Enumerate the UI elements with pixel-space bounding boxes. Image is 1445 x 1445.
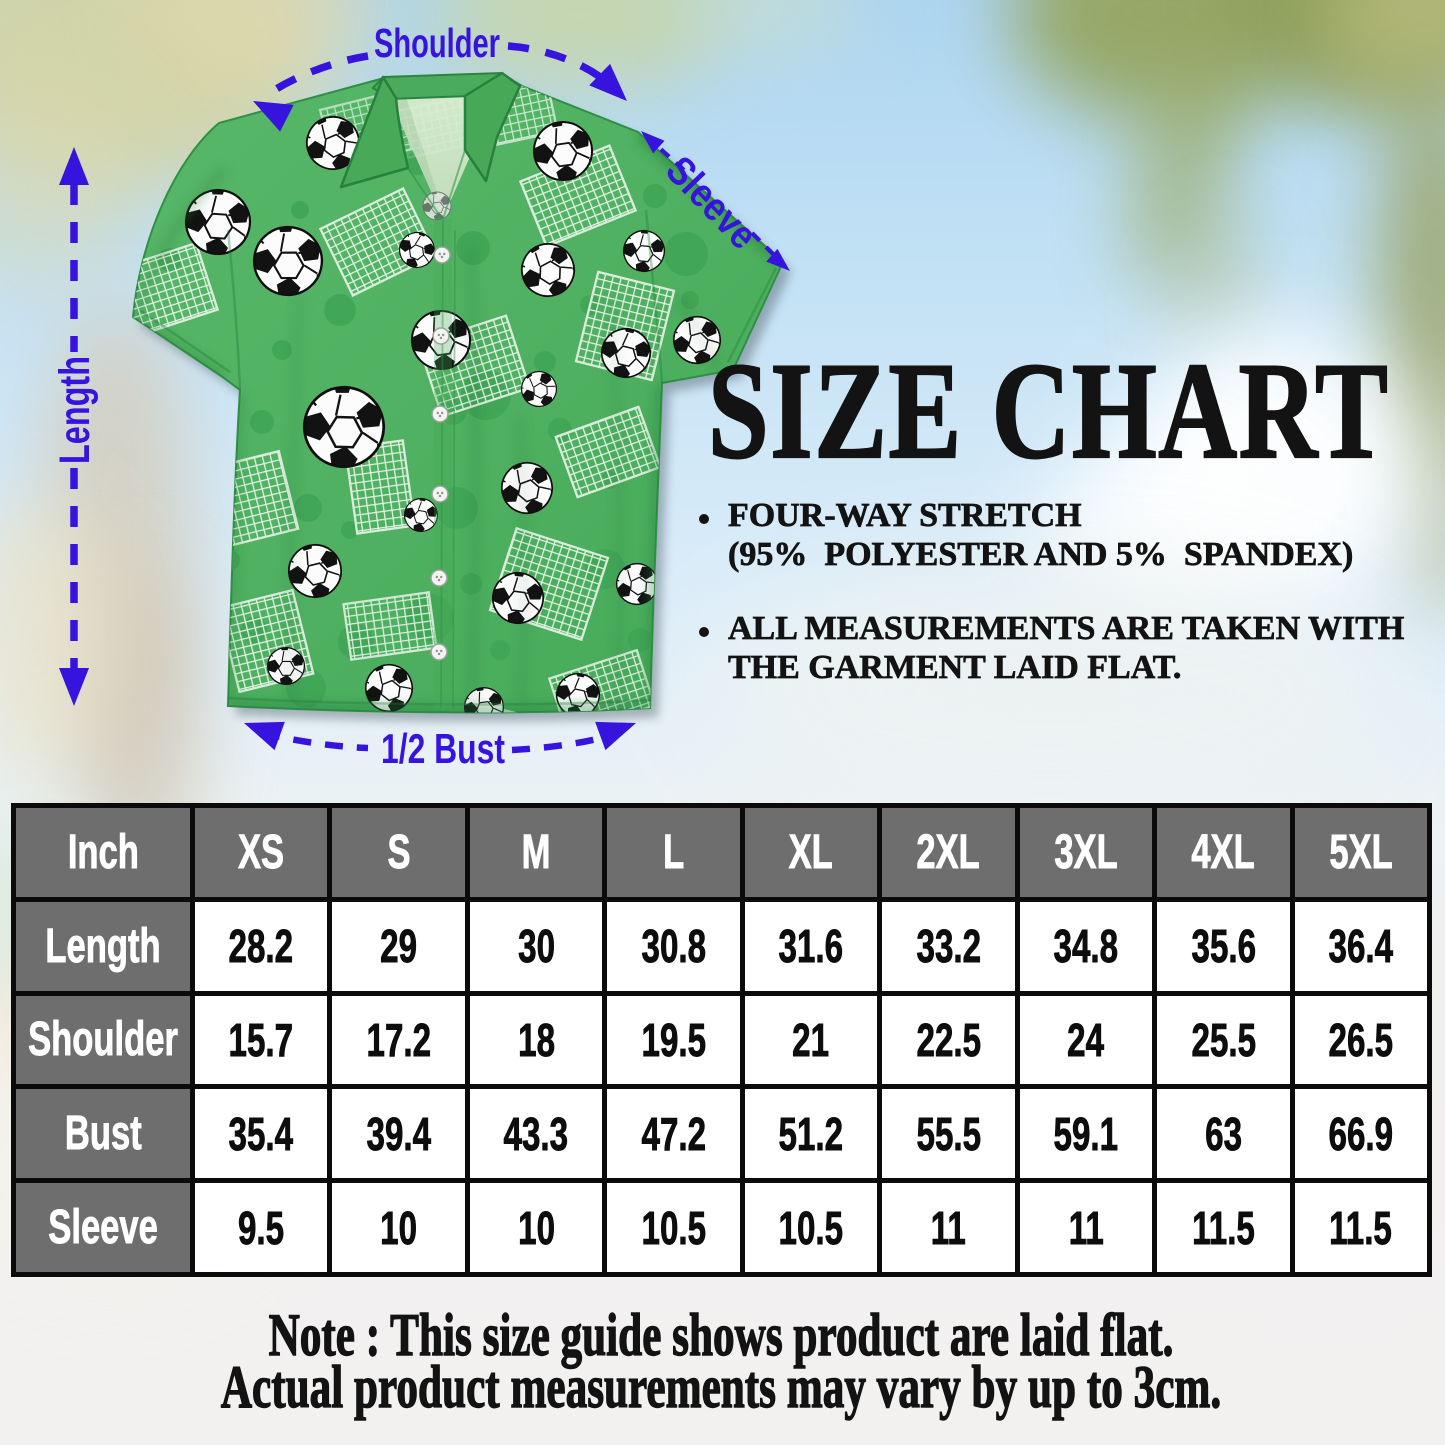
svg-text:1/2 Bust: 1/2 Bust — [381, 725, 505, 772]
svg-text:Shoulder: Shoulder — [374, 20, 500, 66]
svg-text:Length: Length — [51, 356, 99, 464]
